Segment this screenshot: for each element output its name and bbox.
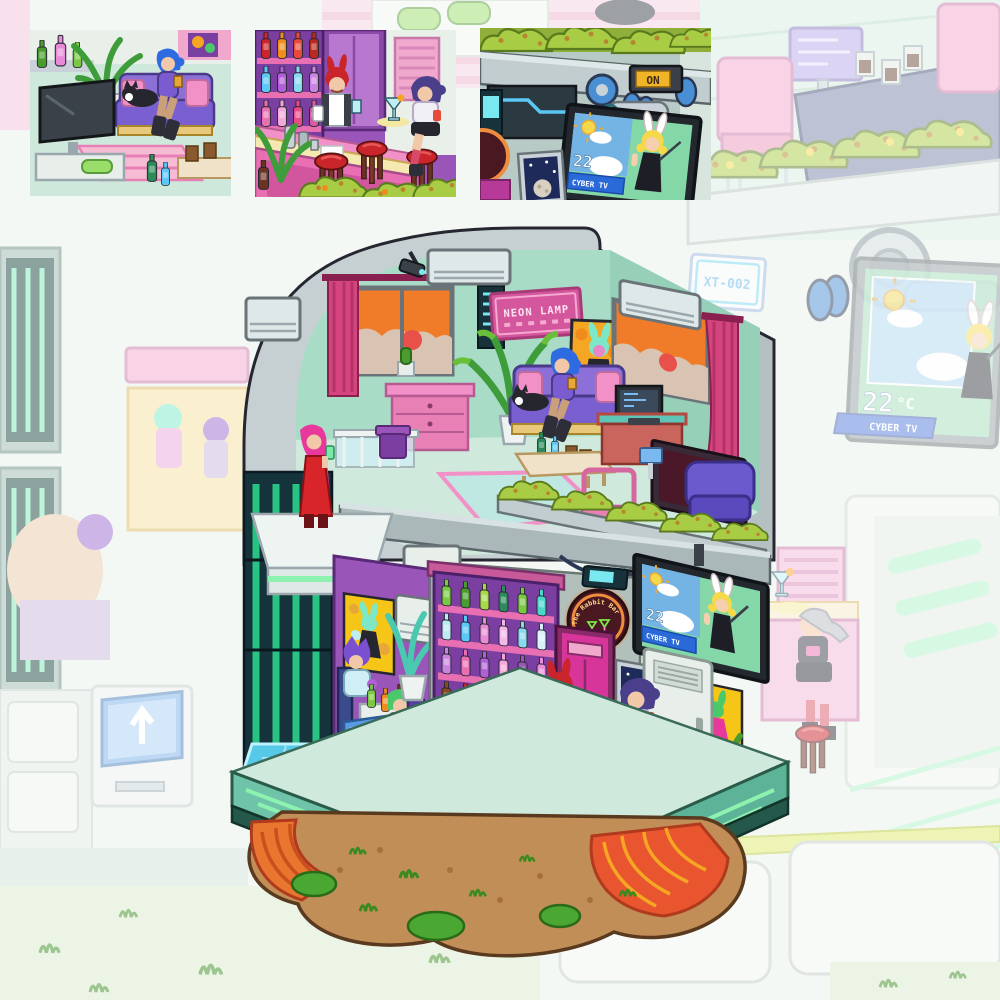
drink-glass [568,378,576,389]
pixel-art-scene: XT-002 22 °C CYBER TV [0,0,1000,1000]
inset-moon-picture [518,151,566,206]
on-label: ON [646,74,659,87]
inset-roof-hedge [480,27,728,53]
inset-living-room [30,30,234,196]
weather-temp: 22 [572,151,593,172]
trash-bin [376,426,410,458]
neon-lamp-sign: NEON LAMP [490,288,583,340]
main-building: NEON LAMP [232,228,788,956]
bush [408,912,464,940]
cactus [401,348,411,364]
inset-tv [40,80,114,142]
bush [540,905,580,927]
weather-unit: °C [596,156,609,168]
keyboard [628,418,660,425]
inset-tv-weather: 22 °C CYBER TV [558,102,701,213]
ac-unit [246,298,300,340]
inset-on-machine: ON [630,66,682,92]
purple-armchair [686,462,754,520]
bush [292,872,336,896]
ac-unit [428,250,510,284]
game-controller-icon [82,160,112,173]
inset-shelf [255,30,323,142]
inset-device [480,90,502,134]
inset-weather-tv: ON 22 °C CYBER TV [456,27,728,213]
